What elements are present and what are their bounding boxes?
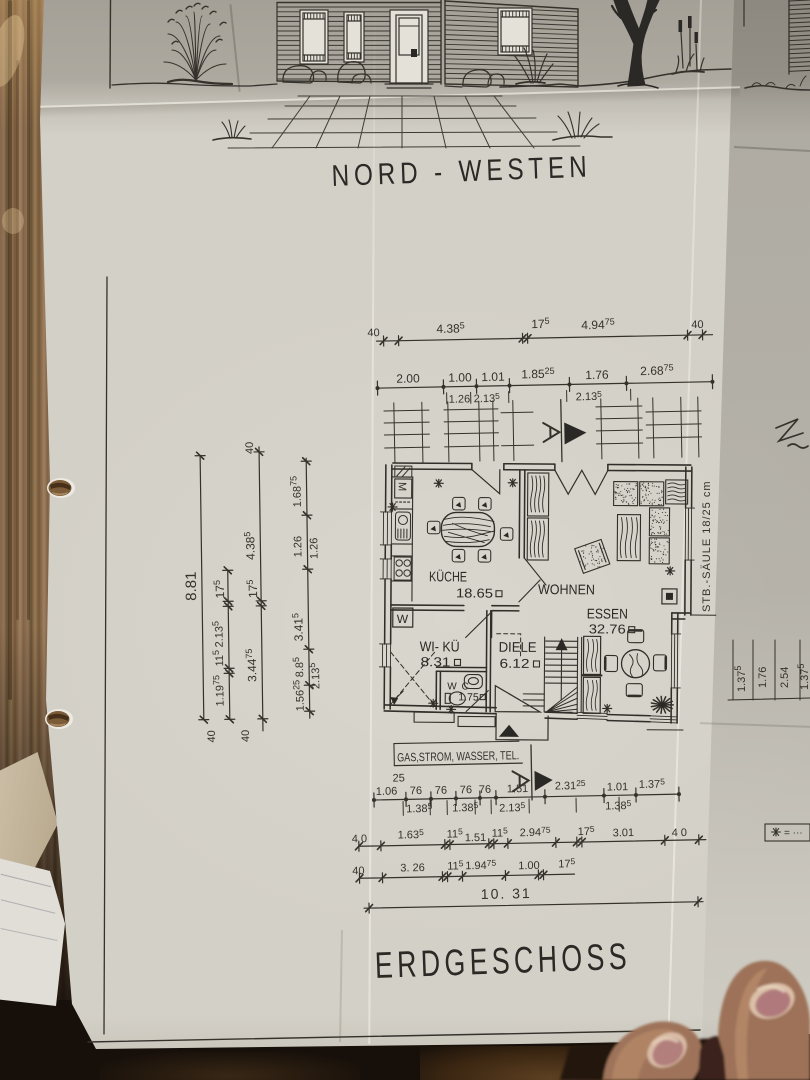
svg-text:175: 175	[212, 580, 227, 599]
svg-text:4 0: 4 0	[352, 833, 368, 845]
svg-text:1.385: 1.385	[406, 801, 433, 816]
svg-text:1.06: 1.06	[376, 786, 398, 798]
svg-text:1.9475: 1.9475	[465, 858, 496, 873]
svg-text:1.76: 1.76	[757, 667, 769, 688]
svg-text:2.135: 2.135	[499, 800, 526, 815]
svg-text:2.3125: 2.3125	[555, 778, 586, 793]
svg-text:76: 76	[460, 784, 472, 796]
svg-text:115: 115	[447, 858, 464, 872]
svg-text:1.26: 1.26	[449, 393, 471, 405]
svg-text:175: 175	[531, 316, 550, 331]
svg-text:40: 40	[691, 319, 703, 331]
svg-text:8.85: 8.85	[291, 657, 306, 678]
svg-text:3.415: 3.415	[290, 613, 305, 642]
svg-text:= ⋯: = ⋯	[784, 828, 803, 839]
svg-text:10. 31: 10. 31	[481, 885, 532, 902]
svg-text:32.76: 32.76	[589, 621, 626, 636]
svg-text:WI- KÜ: WI- KÜ	[420, 637, 460, 654]
svg-text:1.00: 1.00	[448, 370, 472, 384]
svg-text:2.135: 2.135	[210, 621, 225, 648]
svg-text:KÜCHE: KÜCHE	[429, 567, 467, 584]
svg-text:175: 175	[578, 824, 596, 838]
svg-text:2.9475: 2.9475	[520, 825, 551, 840]
svg-text:40: 40	[240, 730, 252, 742]
svg-text:175: 175	[558, 856, 576, 870]
svg-text:1.51: 1.51	[507, 783, 529, 795]
svg-text:3.01: 3.01	[613, 827, 635, 839]
svg-text:ESSEN: ESSEN	[587, 605, 628, 621]
svg-text:4.385: 4.385	[436, 320, 465, 336]
svg-text:3. 26: 3. 26	[400, 862, 425, 874]
svg-text:1.51: 1.51	[465, 832, 487, 844]
svg-text:2.135: 2.135	[576, 389, 603, 404]
svg-text:2.00: 2.00	[396, 371, 420, 385]
svg-text:40: 40	[367, 327, 379, 339]
svg-text:25: 25	[392, 772, 404, 784]
svg-text:2.135: 2.135	[474, 391, 501, 406]
svg-text:ERDGESCHOSS: ERDGESCHOSS	[374, 936, 631, 986]
svg-text:4.9475: 4.9475	[581, 317, 615, 333]
svg-text:6.12: 6.12	[499, 656, 529, 671]
svg-text:GAS,STROM, WASSER, TEL.: GAS,STROM, WASSER, TEL.	[397, 748, 519, 764]
svg-text:2.6875: 2.6875	[640, 362, 674, 378]
svg-text:18.65: 18.65	[456, 585, 493, 600]
svg-text:1.635: 1.635	[398, 827, 425, 842]
svg-text:DIELE: DIELE	[499, 639, 537, 655]
svg-text:1.01: 1.01	[607, 781, 629, 793]
svg-text:115: 115	[211, 650, 226, 667]
svg-text:3.4475: 3.4475	[244, 649, 259, 683]
svg-text:1.375: 1.375	[733, 666, 748, 692]
svg-text:76: 76	[479, 784, 491, 796]
svg-text:8.31: 8.31	[420, 654, 450, 669]
svg-text:1.76: 1.76	[585, 368, 609, 382]
svg-text:1.385: 1.385	[605, 798, 632, 813]
svg-text:W: W	[397, 612, 409, 626]
svg-text:M: M	[396, 482, 408, 491]
svg-text:WOHNEN: WOHNEN	[538, 581, 595, 597]
svg-text:76: 76	[410, 785, 422, 797]
svg-text:1.1975: 1.1975	[211, 675, 226, 707]
svg-text:40: 40	[352, 865, 364, 877]
svg-text:1.00: 1.00	[518, 860, 540, 872]
svg-text:1.26: 1.26	[308, 538, 320, 560]
svg-text:115: 115	[492, 825, 509, 839]
svg-text:4.385: 4.385	[242, 532, 257, 561]
svg-text:40: 40	[206, 730, 218, 742]
svg-text:40: 40	[244, 442, 256, 454]
svg-text:175: 175	[245, 579, 260, 598]
svg-text:8.81: 8.81	[183, 571, 200, 600]
svg-text:2.54: 2.54	[779, 667, 791, 688]
svg-text:NORD - WESTEN: NORD - WESTEN	[331, 150, 592, 193]
svg-text:1.26: 1.26	[292, 536, 304, 558]
svg-text:1.375: 1.375	[639, 776, 666, 791]
svg-text:4 0: 4 0	[672, 827, 688, 839]
svg-text:STB.-SÄULE 18/25 cm: STB.-SÄULE 18/25 cm	[701, 481, 713, 613]
svg-text:1.5625: 1.5625	[291, 680, 306, 712]
svg-text:1.375: 1.375	[796, 664, 810, 690]
svg-text:115: 115	[447, 826, 464, 840]
svg-text:1.385: 1.385	[452, 800, 479, 815]
svg-text:76: 76	[435, 785, 447, 797]
svg-text:1.8525: 1.8525	[521, 366, 555, 382]
svg-text:1.6875: 1.6875	[288, 476, 303, 508]
svg-text:1.01: 1.01	[481, 370, 505, 384]
